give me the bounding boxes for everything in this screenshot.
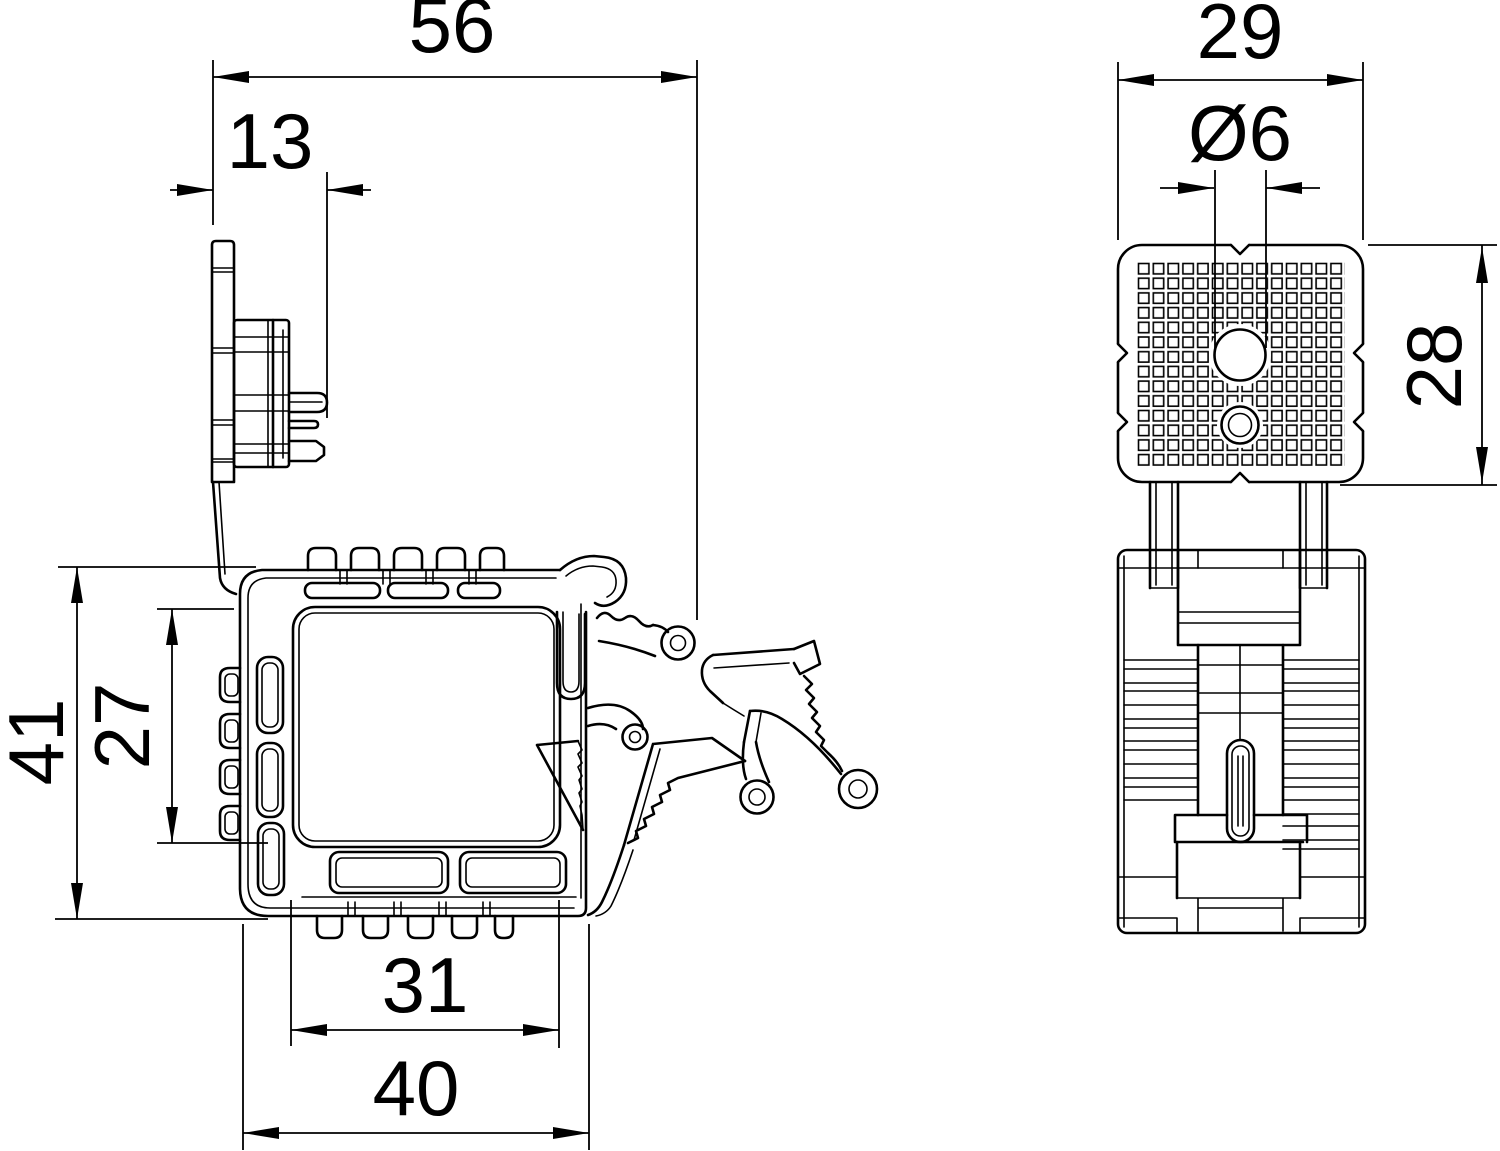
serrated-strap	[597, 613, 653, 626]
strap-loop-end	[662, 627, 695, 660]
hinge-block	[1178, 550, 1300, 645]
knurled-plate	[1112, 239, 1369, 488]
dim-plate-height-label: 28	[1390, 323, 1478, 410]
dim-side-width-label: 29	[1197, 0, 1284, 75]
front-view: 56 13 41 27	[0, 0, 877, 1150]
dim-plate-offset: 13	[170, 97, 371, 418]
connector-block	[234, 320, 327, 467]
dim-hole-diameter-label: Ø6	[1188, 89, 1292, 177]
mounting-plate-edge	[212, 241, 236, 594]
drawing-canvas: 56 13 41 27	[0, 0, 1500, 1151]
dim-outer-width-label: 40	[373, 1044, 460, 1132]
cable-cavity	[293, 607, 560, 847]
barb-tip	[794, 641, 820, 674]
dim-inner-width: 31	[291, 900, 559, 1048]
strap-root	[588, 845, 624, 915]
latch-open	[702, 641, 877, 814]
clamp-body-side	[1118, 550, 1365, 933]
pin-slot	[1227, 740, 1254, 842]
lower-prong	[289, 441, 324, 461]
dim-inner-width-label: 31	[382, 941, 469, 1029]
dim-plate-offset-label: 13	[227, 97, 314, 185]
hook-loop-end	[839, 770, 877, 808]
dim-overall-width: 56	[213, 0, 697, 620]
latch-closed	[537, 613, 745, 916]
dim-overall-width-label: 56	[409, 0, 496, 69]
front-dimensions: 56 13 41 27	[0, 0, 697, 1150]
dim-overall-height-label: 41	[0, 699, 80, 786]
side-view: 29 Ø6 28	[1112, 0, 1497, 933]
side-ribs	[220, 668, 240, 840]
serrated-edge	[804, 676, 828, 753]
mid-prong	[289, 421, 318, 428]
rib-stack-left	[1124, 660, 1198, 800]
dim-opening-height-label: 27	[78, 683, 166, 770]
technical-drawing: 56 13 41 27	[0, 0, 1500, 1151]
rib-stack-right	[1283, 660, 1359, 849]
